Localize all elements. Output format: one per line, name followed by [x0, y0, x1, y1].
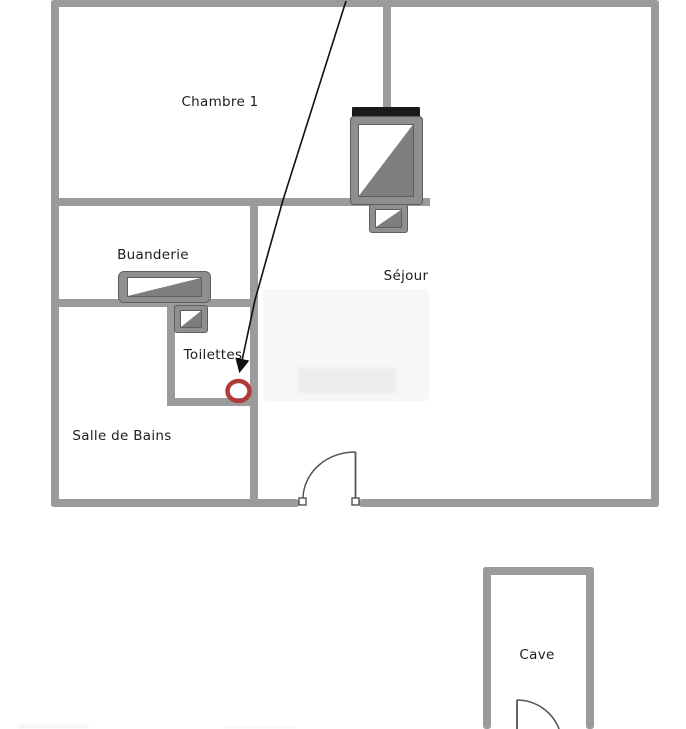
wall-outer-top	[51, 0, 659, 7]
wall-toilettes-bottom	[167, 398, 258, 406]
wall-cave-top	[483, 567, 594, 575]
wall-cave-left	[483, 567, 491, 729]
wall-outer-left	[51, 0, 59, 507]
entrance-door-hinge-left-icon	[299, 498, 306, 505]
room-label-chambre1: Chambre 1	[181, 94, 258, 110]
wall-cave-right	[586, 567, 594, 729]
room-label-buanderie: Buanderie	[117, 247, 189, 263]
wall-outer-bottom-right	[359, 499, 659, 507]
room-label-sejour: Séjour	[384, 268, 429, 284]
cave-door-arc-icon	[517, 700, 562, 729]
room-label-toilettes: Toilettes	[184, 347, 243, 363]
wall-chambre-sejour-divider	[383, 0, 391, 112]
watermark-smudge	[298, 368, 396, 393]
edge-artifact	[18, 725, 88, 728]
room-label-salle-de-bains: Salle de Bains	[72, 428, 171, 444]
wall-outer-bottom-left	[51, 499, 299, 507]
room-label-cave: Cave	[519, 647, 554, 663]
buanderie-window-glass-icon	[127, 277, 202, 297]
entrance-door-arc-icon	[303, 452, 356, 498]
toilettes-window-glass-icon	[180, 310, 202, 328]
edge-artifact	[225, 726, 295, 728]
wall-sejour-left	[250, 198, 258, 507]
entrance-door-hinge-right-icon	[352, 498, 359, 505]
floor-plan: Chambre 1 Buanderie Séjour Toilettes Sal…	[0, 0, 686, 729]
sejour-small-window-glass-icon	[375, 209, 402, 228]
wall-outer-right	[651, 0, 659, 507]
sejour-window-glass-icon	[358, 124, 414, 197]
